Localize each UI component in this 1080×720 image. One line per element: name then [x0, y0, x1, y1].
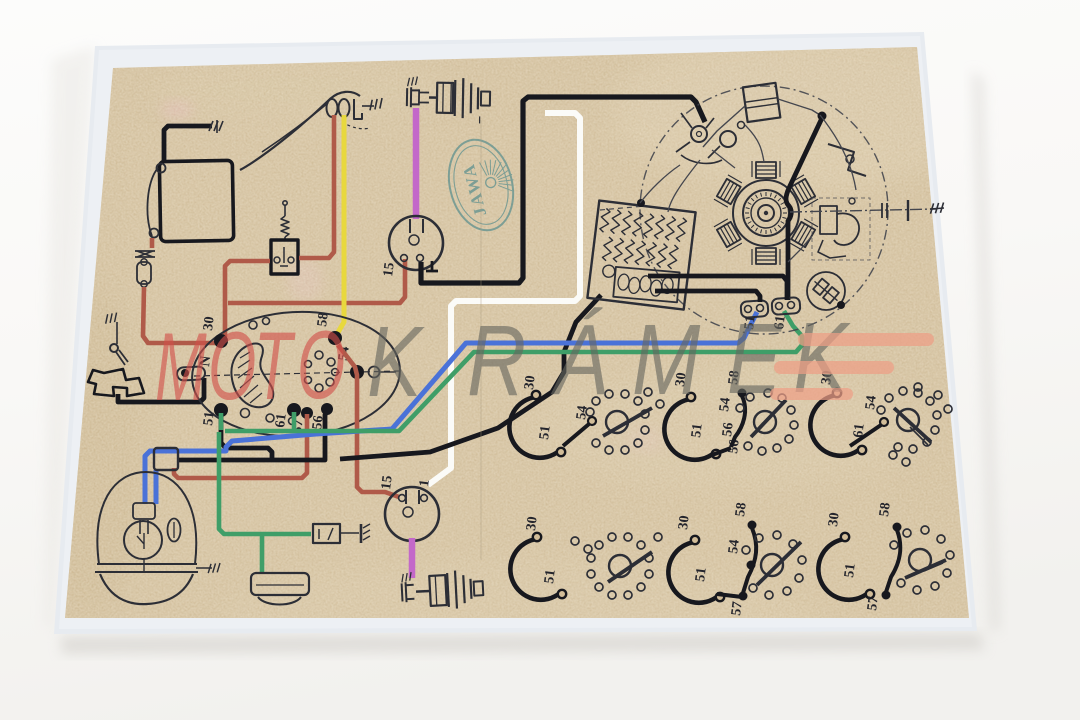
- svg-text:M: M: [632, 304, 701, 416]
- svg-text:30: 30: [524, 516, 541, 532]
- svg-text:30: 30: [826, 512, 843, 528]
- svg-text:57: 57: [865, 596, 882, 612]
- svg-text:51: 51: [693, 567, 710, 583]
- svg-text:51: 51: [542, 569, 559, 585]
- svg-text:Á: Á: [550, 304, 608, 416]
- svg-text:T: T: [254, 312, 296, 420]
- svg-text:R: R: [467, 305, 526, 417]
- svg-text:51: 51: [842, 563, 859, 579]
- svg-text:30: 30: [676, 515, 693, 531]
- svg-text:O: O: [297, 311, 345, 419]
- svg-text:54: 54: [726, 539, 743, 555]
- svg-text:O: O: [208, 312, 256, 420]
- svg-text:58: 58: [877, 502, 894, 518]
- svg-text:15: 15: [381, 262, 398, 278]
- svg-text:15: 15: [379, 475, 396, 491]
- svg-text:51: 51: [537, 425, 554, 441]
- svg-text:58: 58: [733, 502, 750, 518]
- svg-text:K: K: [367, 306, 425, 418]
- svg-text:M: M: [155, 313, 207, 421]
- svg-text:57: 57: [729, 601, 746, 617]
- svg-text:51: 51: [689, 423, 706, 439]
